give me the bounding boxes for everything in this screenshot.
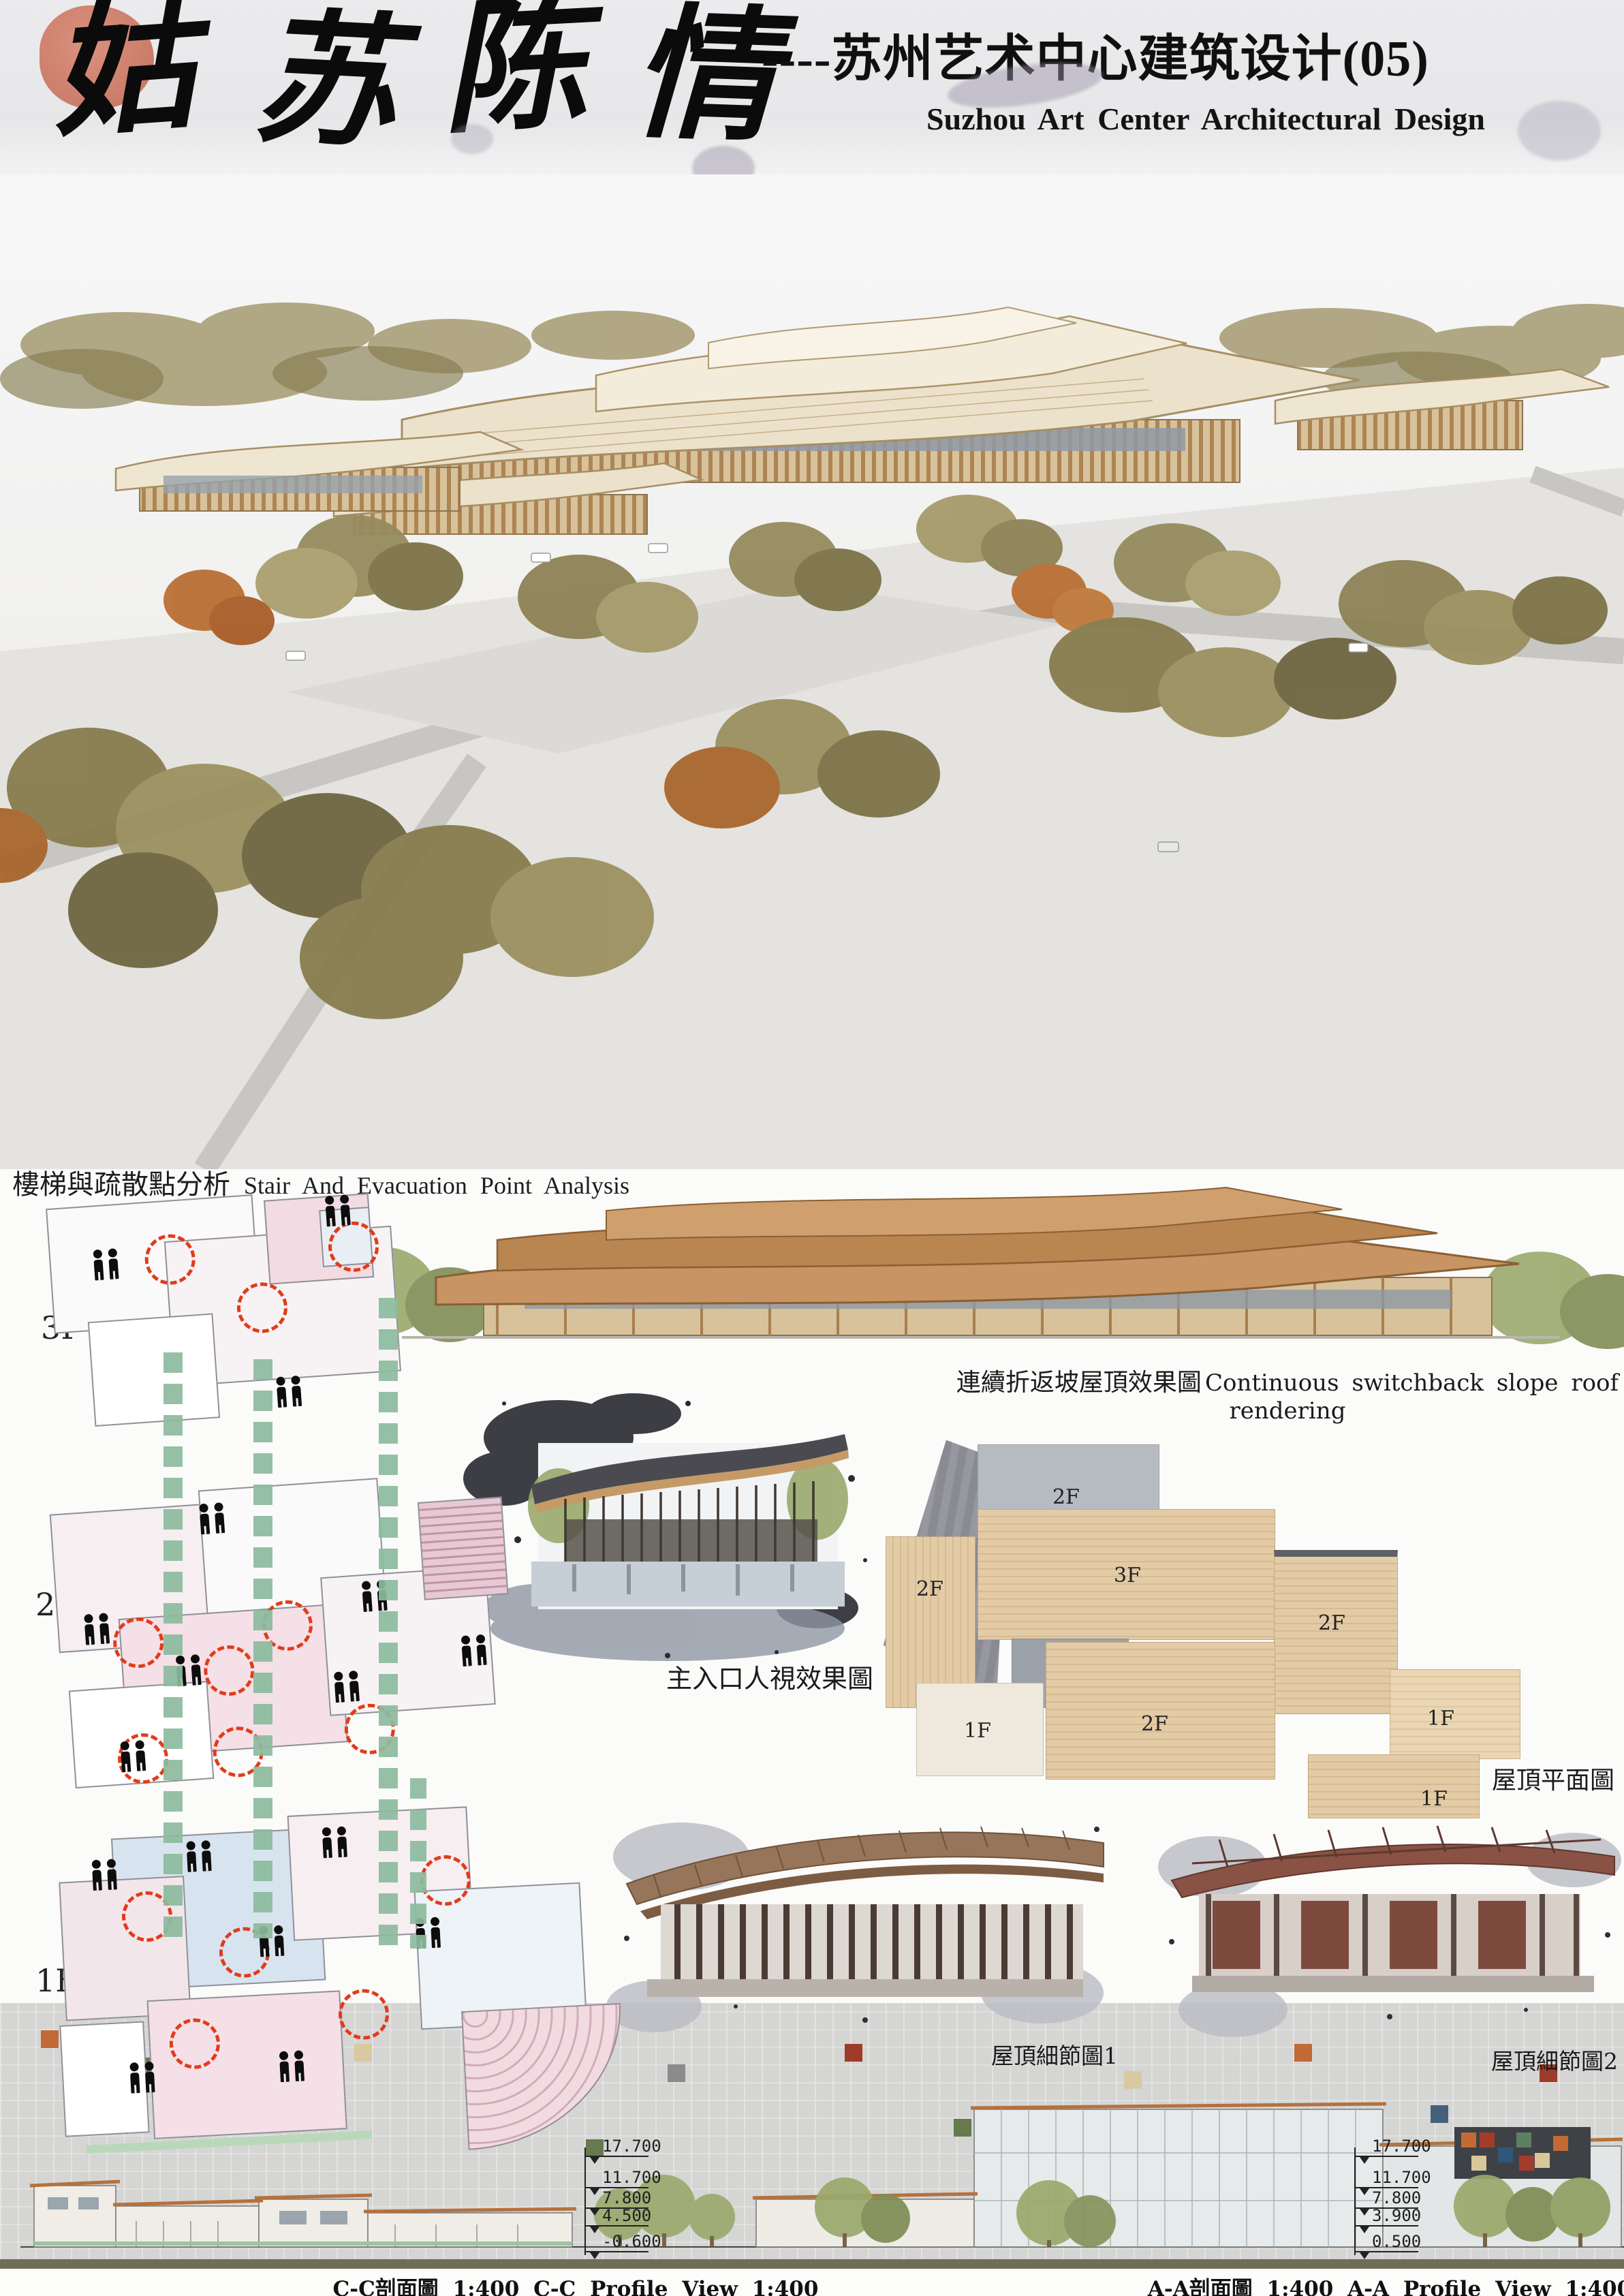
person-icon — [92, 1870, 102, 1891]
person-icons — [93, 1248, 119, 1280]
person-icons — [92, 1859, 117, 1891]
auditorium-fan — [461, 2003, 627, 2150]
roof-plan-block — [1390, 1669, 1520, 1759]
person-icons — [199, 1502, 225, 1534]
person-icon — [202, 1850, 212, 1872]
elevation-tick — [1354, 2251, 1418, 2252]
roof-plan-label: 2F — [916, 1577, 943, 1601]
elevation-value: 11.700 — [1372, 2169, 1431, 2186]
person-icon — [277, 1386, 287, 1408]
header: 姑 苏 陈 情 ----苏州艺术中心建筑设计(05) Suzhou Art Ce… — [0, 0, 1624, 174]
person-icon — [326, 1206, 336, 1227]
roof-plan-label: 1F — [964, 1719, 991, 1743]
person-icon — [477, 1645, 487, 1666]
elevation-value: 7.800 — [1372, 2190, 1421, 2206]
person-icon — [260, 1936, 270, 1957]
person-icon — [191, 1664, 202, 1686]
calligraphy-char: 陈 — [438, 0, 590, 141]
person-icon — [462, 1645, 472, 1666]
switchback-caption-en: Continuous switchback slope roof renderi… — [1205, 1369, 1619, 1425]
aerial-rendering — [0, 174, 1624, 1169]
evacuation-point-circle — [337, 1988, 390, 2041]
person-icon — [136, 1750, 146, 1771]
person-icon — [362, 1591, 373, 1612]
elevation-value: 11.700 — [602, 2169, 661, 2186]
person-icons — [276, 1376, 302, 1408]
poster-board: 姑 苏 陈 情 ----苏州艺术中心建筑设计(05) Suzhou Art Ce… — [0, 0, 1624, 2296]
elevation-ladder-cc: 17.700 11.700 7.800 4.500 -0.600 — [584, 2138, 687, 2258]
mosaic-tile — [845, 2044, 862, 2062]
plan-room — [88, 1313, 220, 1426]
person-icon — [200, 1514, 210, 1535]
floor-plan-2f — [27, 1455, 526, 1815]
roof-plan-label: 1F — [1420, 1787, 1448, 1811]
person-icon — [187, 1851, 197, 1872]
roof-plan-block — [1046, 1642, 1275, 1780]
person-icon — [121, 1751, 131, 1772]
floor-plan-1f — [27, 1772, 619, 2183]
roof-detail-1 — [599, 1802, 1117, 2041]
elevation-value: 17.700 — [1372, 2138, 1431, 2154]
elevation-value: -0.600 — [602, 2233, 661, 2250]
person-icons — [325, 1194, 351, 1226]
person-icon — [107, 1869, 117, 1890]
evacuation-route-band — [253, 1359, 272, 1938]
section-cc-caption: C-C剖面圖 1:400 C-C Profile View 1:400 — [286, 2271, 865, 2296]
roof-plan-label: 2F — [1141, 1712, 1168, 1736]
roof-detail-2-caption: 屋頂細節圖2 — [1486, 2048, 1623, 2075]
person-icon — [215, 1512, 225, 1534]
person-icon — [294, 2060, 304, 2081]
person-icon — [108, 1258, 119, 1279]
plan-room — [146, 1990, 347, 2139]
ink-splatter — [1518, 101, 1601, 161]
roof-plan-label: 2F — [1052, 1485, 1080, 1509]
calligraphy-char: 苏 — [250, 5, 402, 157]
poster-title-cn: ----苏州艺术中心建筑设计(05) — [762, 18, 1620, 91]
elevation-tick — [1354, 2156, 1418, 2157]
elevation-ladder-aa: 17.700 11.700 7.800 3.900 0.500 — [1354, 2138, 1456, 2258]
person-icon — [334, 1681, 345, 1703]
elevation-value: 17.700 — [602, 2138, 661, 2154]
evacuation-route-band — [163, 1352, 183, 1938]
evacuation-route-band — [379, 1298, 398, 1945]
person-icon — [292, 1386, 302, 1407]
person-icons — [129, 2062, 155, 2094]
ink-splatter — [451, 124, 493, 154]
elevation-tick — [584, 2251, 649, 2252]
person-icon — [322, 1837, 332, 1859]
person-icons — [120, 1740, 146, 1772]
person-icon — [431, 1927, 441, 1949]
roof-plan-label: 3F — [1114, 1564, 1141, 1587]
elevation-value: 3.900 — [1372, 2207, 1421, 2224]
person-icon — [130, 2073, 140, 2094]
section-aa-caption: A-A剖面圖 1:400 A-A Profile View 1:400 — [1124, 2271, 1624, 2296]
plan-room — [418, 1496, 509, 1600]
elevation-value: 4.500 — [602, 2207, 651, 2224]
evacuation-route-band — [410, 1778, 426, 1949]
person-icons — [334, 1671, 360, 1703]
calligraphy-char: 情 — [629, 0, 779, 149]
person-icon — [341, 1205, 351, 1226]
elevation-value: 0.500 — [1372, 2233, 1421, 2250]
roof-detail-1-caption: 屋頂細節圖1 — [986, 2043, 1123, 2070]
elevation-value: 7.800 — [602, 2190, 651, 2206]
switchback-roof-rendering — [320, 1175, 1624, 1366]
person-icon — [279, 2061, 290, 2082]
person-icons — [279, 2050, 304, 2082]
person-icons — [461, 1634, 487, 1666]
switchback-caption-cn: 連續折返坡屋頂效果圖 — [956, 1369, 1202, 1397]
person-icon — [337, 1837, 347, 1858]
person-icon — [349, 1681, 360, 1702]
switchback-caption: 連續折返坡屋頂效果圖 Continuous switchback slope r… — [954, 1368, 1621, 1425]
person-icons — [186, 1840, 211, 1872]
roof-plan: 2F 2F 3F 2F 1F 2F 1F 1F — [879, 1421, 1621, 1819]
divider-bar — [0, 2259, 1624, 2269]
person-icons — [84, 1613, 110, 1645]
person-icon — [84, 1624, 95, 1645]
poster-title-en: Suzhou Art Center Architectural Design — [845, 101, 1567, 137]
entrance-view-rendering — [463, 1383, 872, 1669]
person-icon — [93, 1260, 104, 1281]
roof-plan-label: 1F — [1427, 1707, 1454, 1731]
person-icon — [275, 1936, 285, 1957]
section-aa-drawing — [749, 2085, 1624, 2255]
roof-detail-2 — [1151, 1799, 1624, 2054]
elevation-tick — [1354, 2225, 1418, 2227]
elevation-tick — [584, 2156, 649, 2157]
person-icon — [99, 1623, 110, 1644]
roof-plan-caption: 屋頂平面圖 — [1485, 1766, 1621, 1795]
elevation-tick — [584, 2225, 649, 2227]
roof-plan-label: 2F — [1318, 1611, 1345, 1635]
calligraphy-char: 姑 — [46, 0, 200, 145]
mosaic-tile — [668, 2064, 685, 2082]
person-icons — [322, 1827, 347, 1859]
entrance-caption: 主入口人視效果圖 — [664, 1664, 875, 1695]
person-icon — [145, 2072, 155, 2093]
